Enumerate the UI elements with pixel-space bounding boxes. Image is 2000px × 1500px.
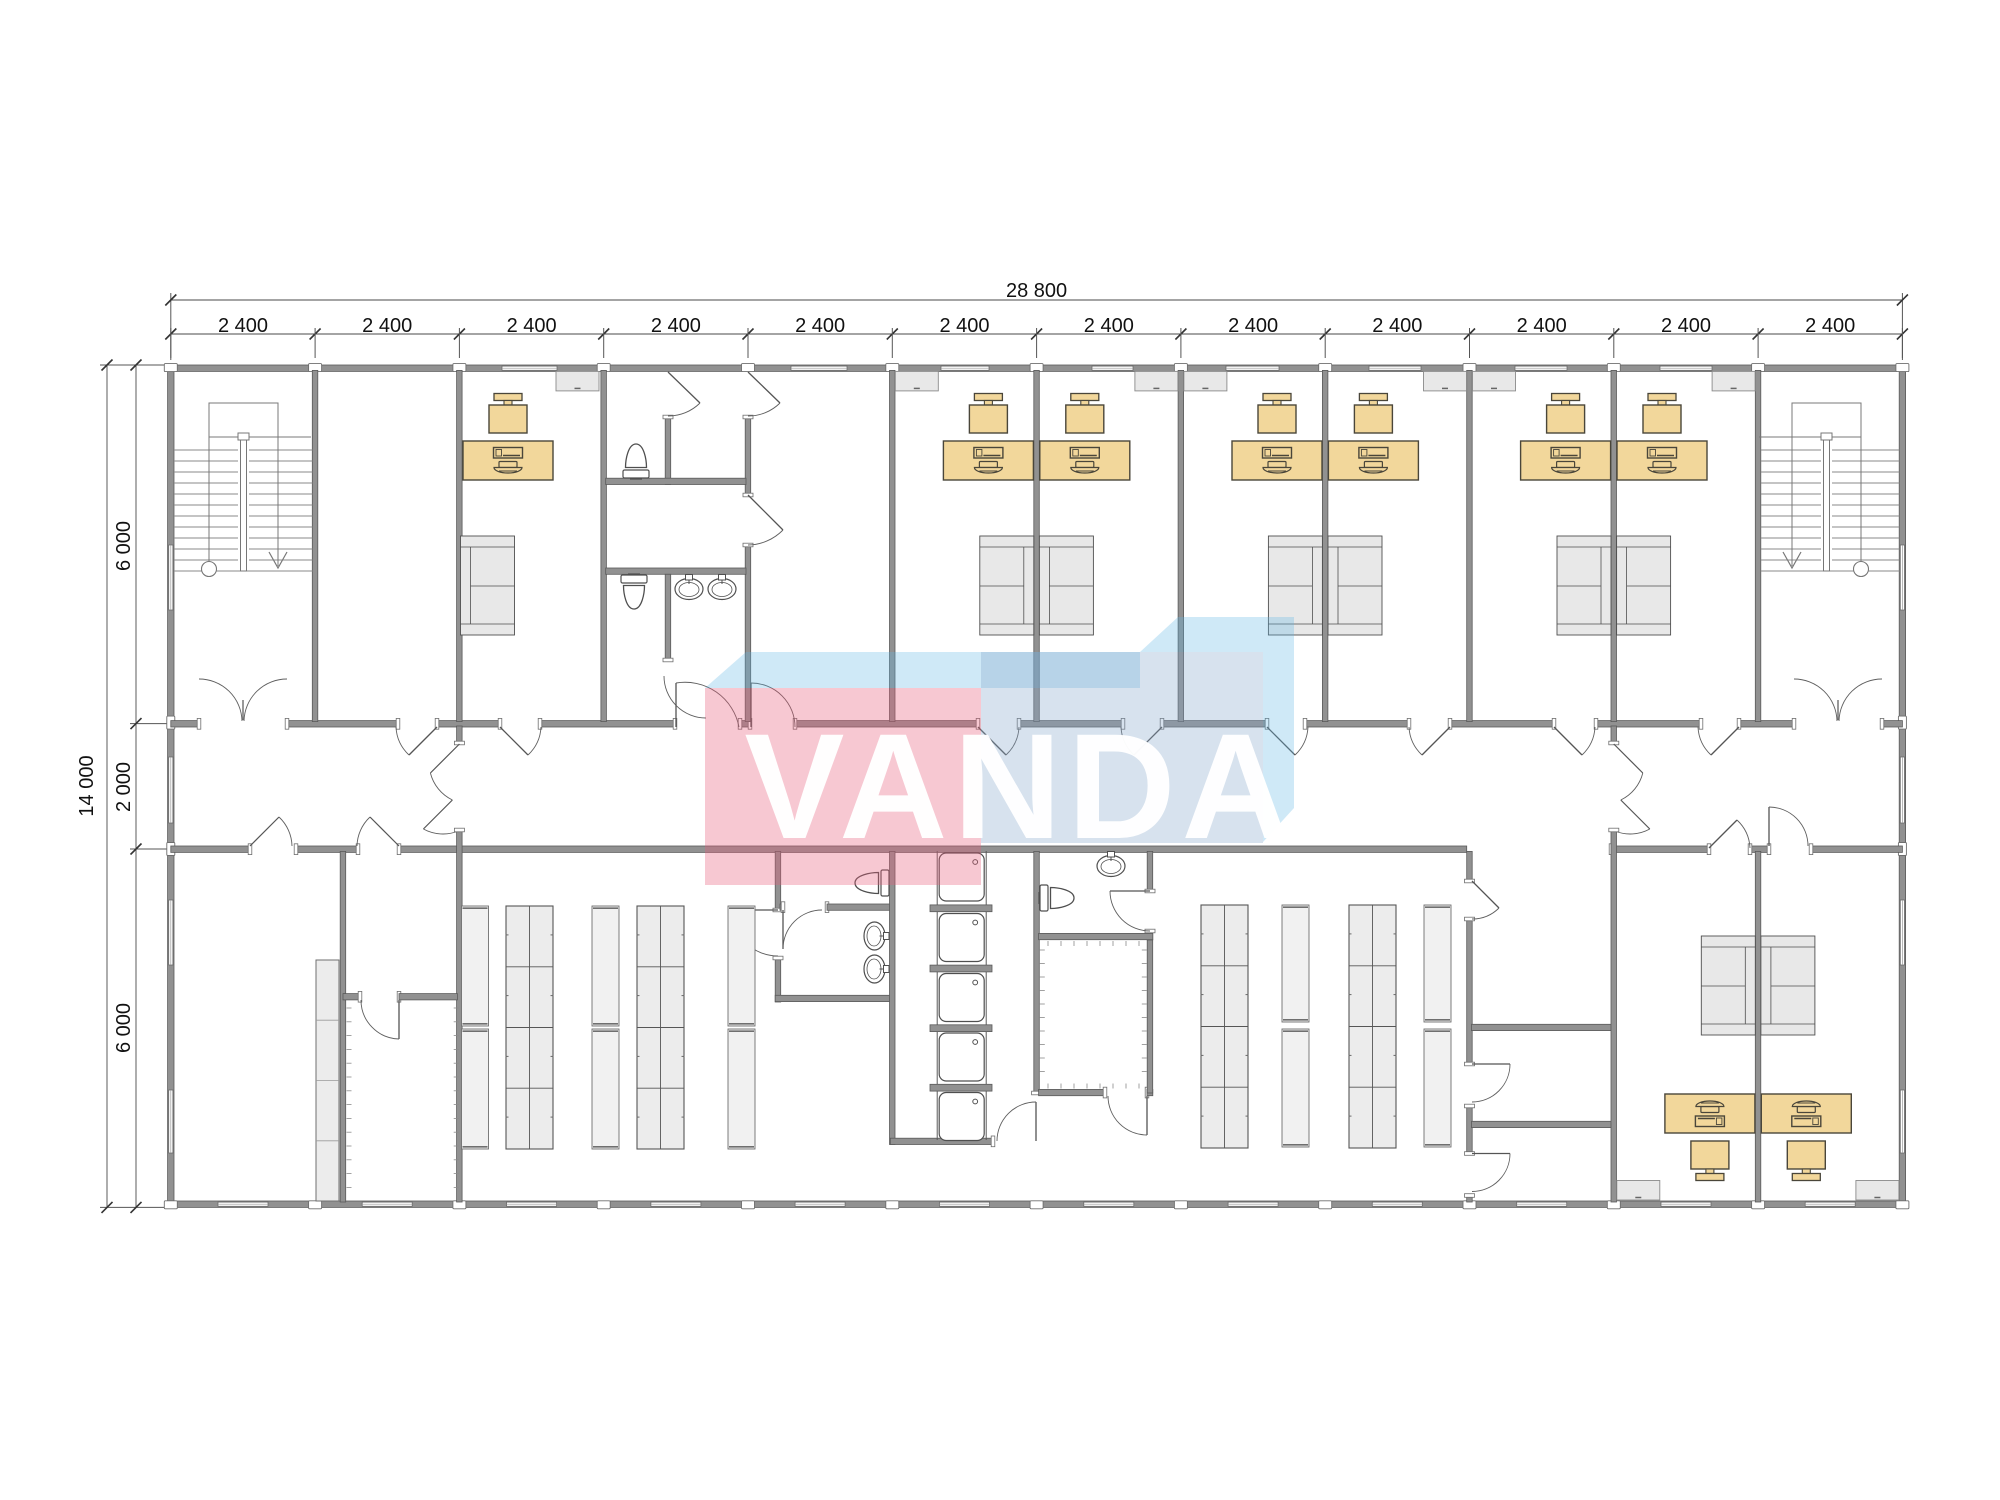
- svg-text:2 400: 2 400: [218, 315, 268, 337]
- svg-text:2 400: 2 400: [362, 315, 412, 337]
- svg-text:2 400: 2 400: [1372, 315, 1422, 337]
- svg-text:2 400: 2 400: [795, 315, 845, 337]
- svg-text:VANDA: VANDA: [744, 702, 1295, 870]
- svg-text:2 400: 2 400: [1228, 315, 1278, 337]
- svg-text:2 400: 2 400: [1805, 315, 1855, 337]
- svg-text:14 000: 14 000: [76, 755, 98, 816]
- svg-text:6 000: 6 000: [113, 1003, 135, 1053]
- svg-text:6 000: 6 000: [113, 521, 135, 571]
- svg-text:2 400: 2 400: [1517, 315, 1567, 337]
- svg-text:2 000: 2 000: [113, 762, 135, 812]
- svg-text:2 400: 2 400: [507, 315, 557, 337]
- svg-text:2 400: 2 400: [1084, 315, 1134, 337]
- svg-text:2 400: 2 400: [939, 315, 989, 337]
- svg-text:2 400: 2 400: [1661, 315, 1711, 337]
- svg-text:28 800: 28 800: [1006, 280, 1067, 302]
- svg-text:2 400: 2 400: [651, 315, 701, 337]
